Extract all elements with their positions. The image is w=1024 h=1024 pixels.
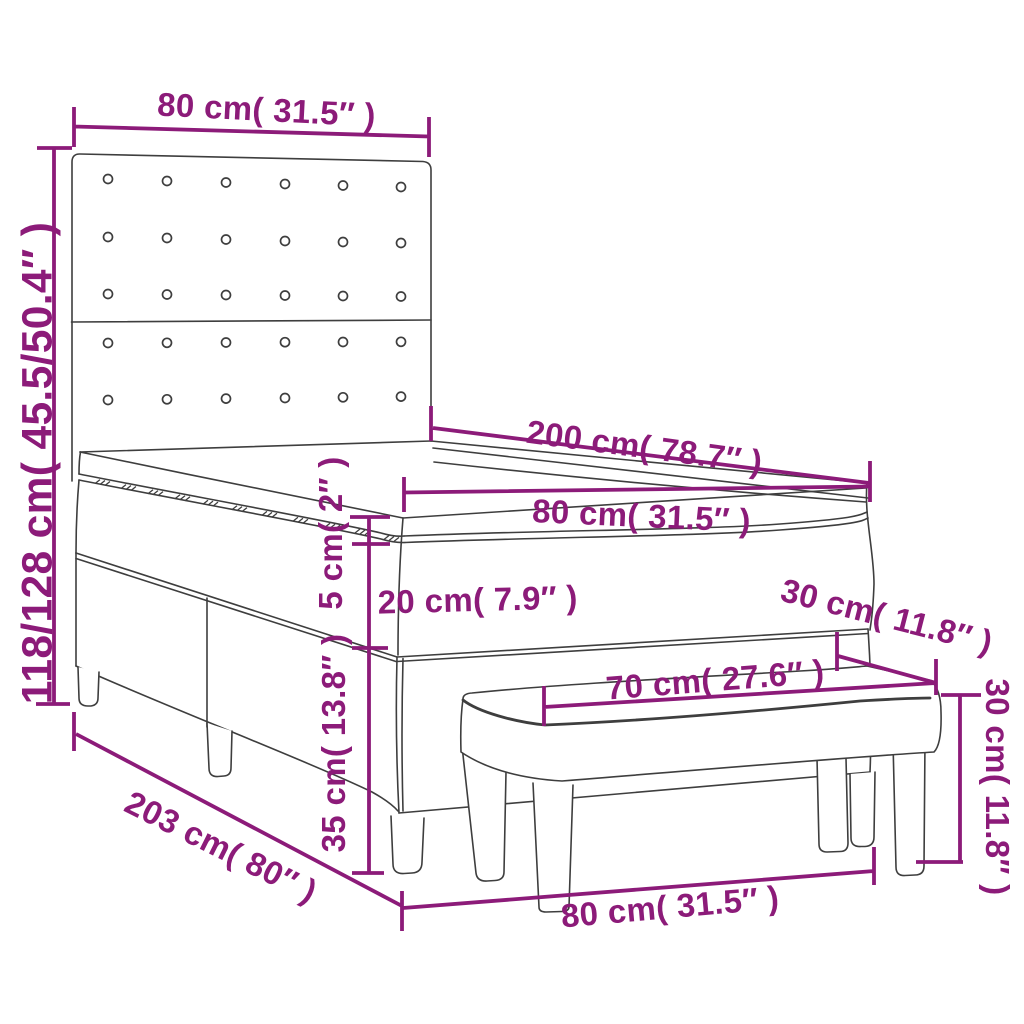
svg-text:118/128 cm( 45.5/50.4″ ): 118/128 cm( 45.5/50.4″ ) [15, 222, 62, 704]
svg-text:35 cm( 13.8″ ): 35 cm( 13.8″ ) [315, 634, 352, 853]
svg-text:30 cm( 11.8″ ): 30 cm( 11.8″ ) [777, 571, 996, 660]
svg-text:80 cm( 31.5″ ): 80 cm( 31.5″ ) [156, 86, 376, 134]
svg-text:5 cm( 2″ ): 5 cm( 2″ ) [312, 456, 349, 609]
svg-text:20 cm( 7.9″ ): 20 cm( 7.9″ ) [377, 578, 578, 620]
svg-text:30 cm( 11.8″ ): 30 cm( 11.8″ ) [979, 679, 1016, 896]
svg-text:200 cm( 78.7″ ): 200 cm( 78.7″ ) [524, 413, 764, 481]
